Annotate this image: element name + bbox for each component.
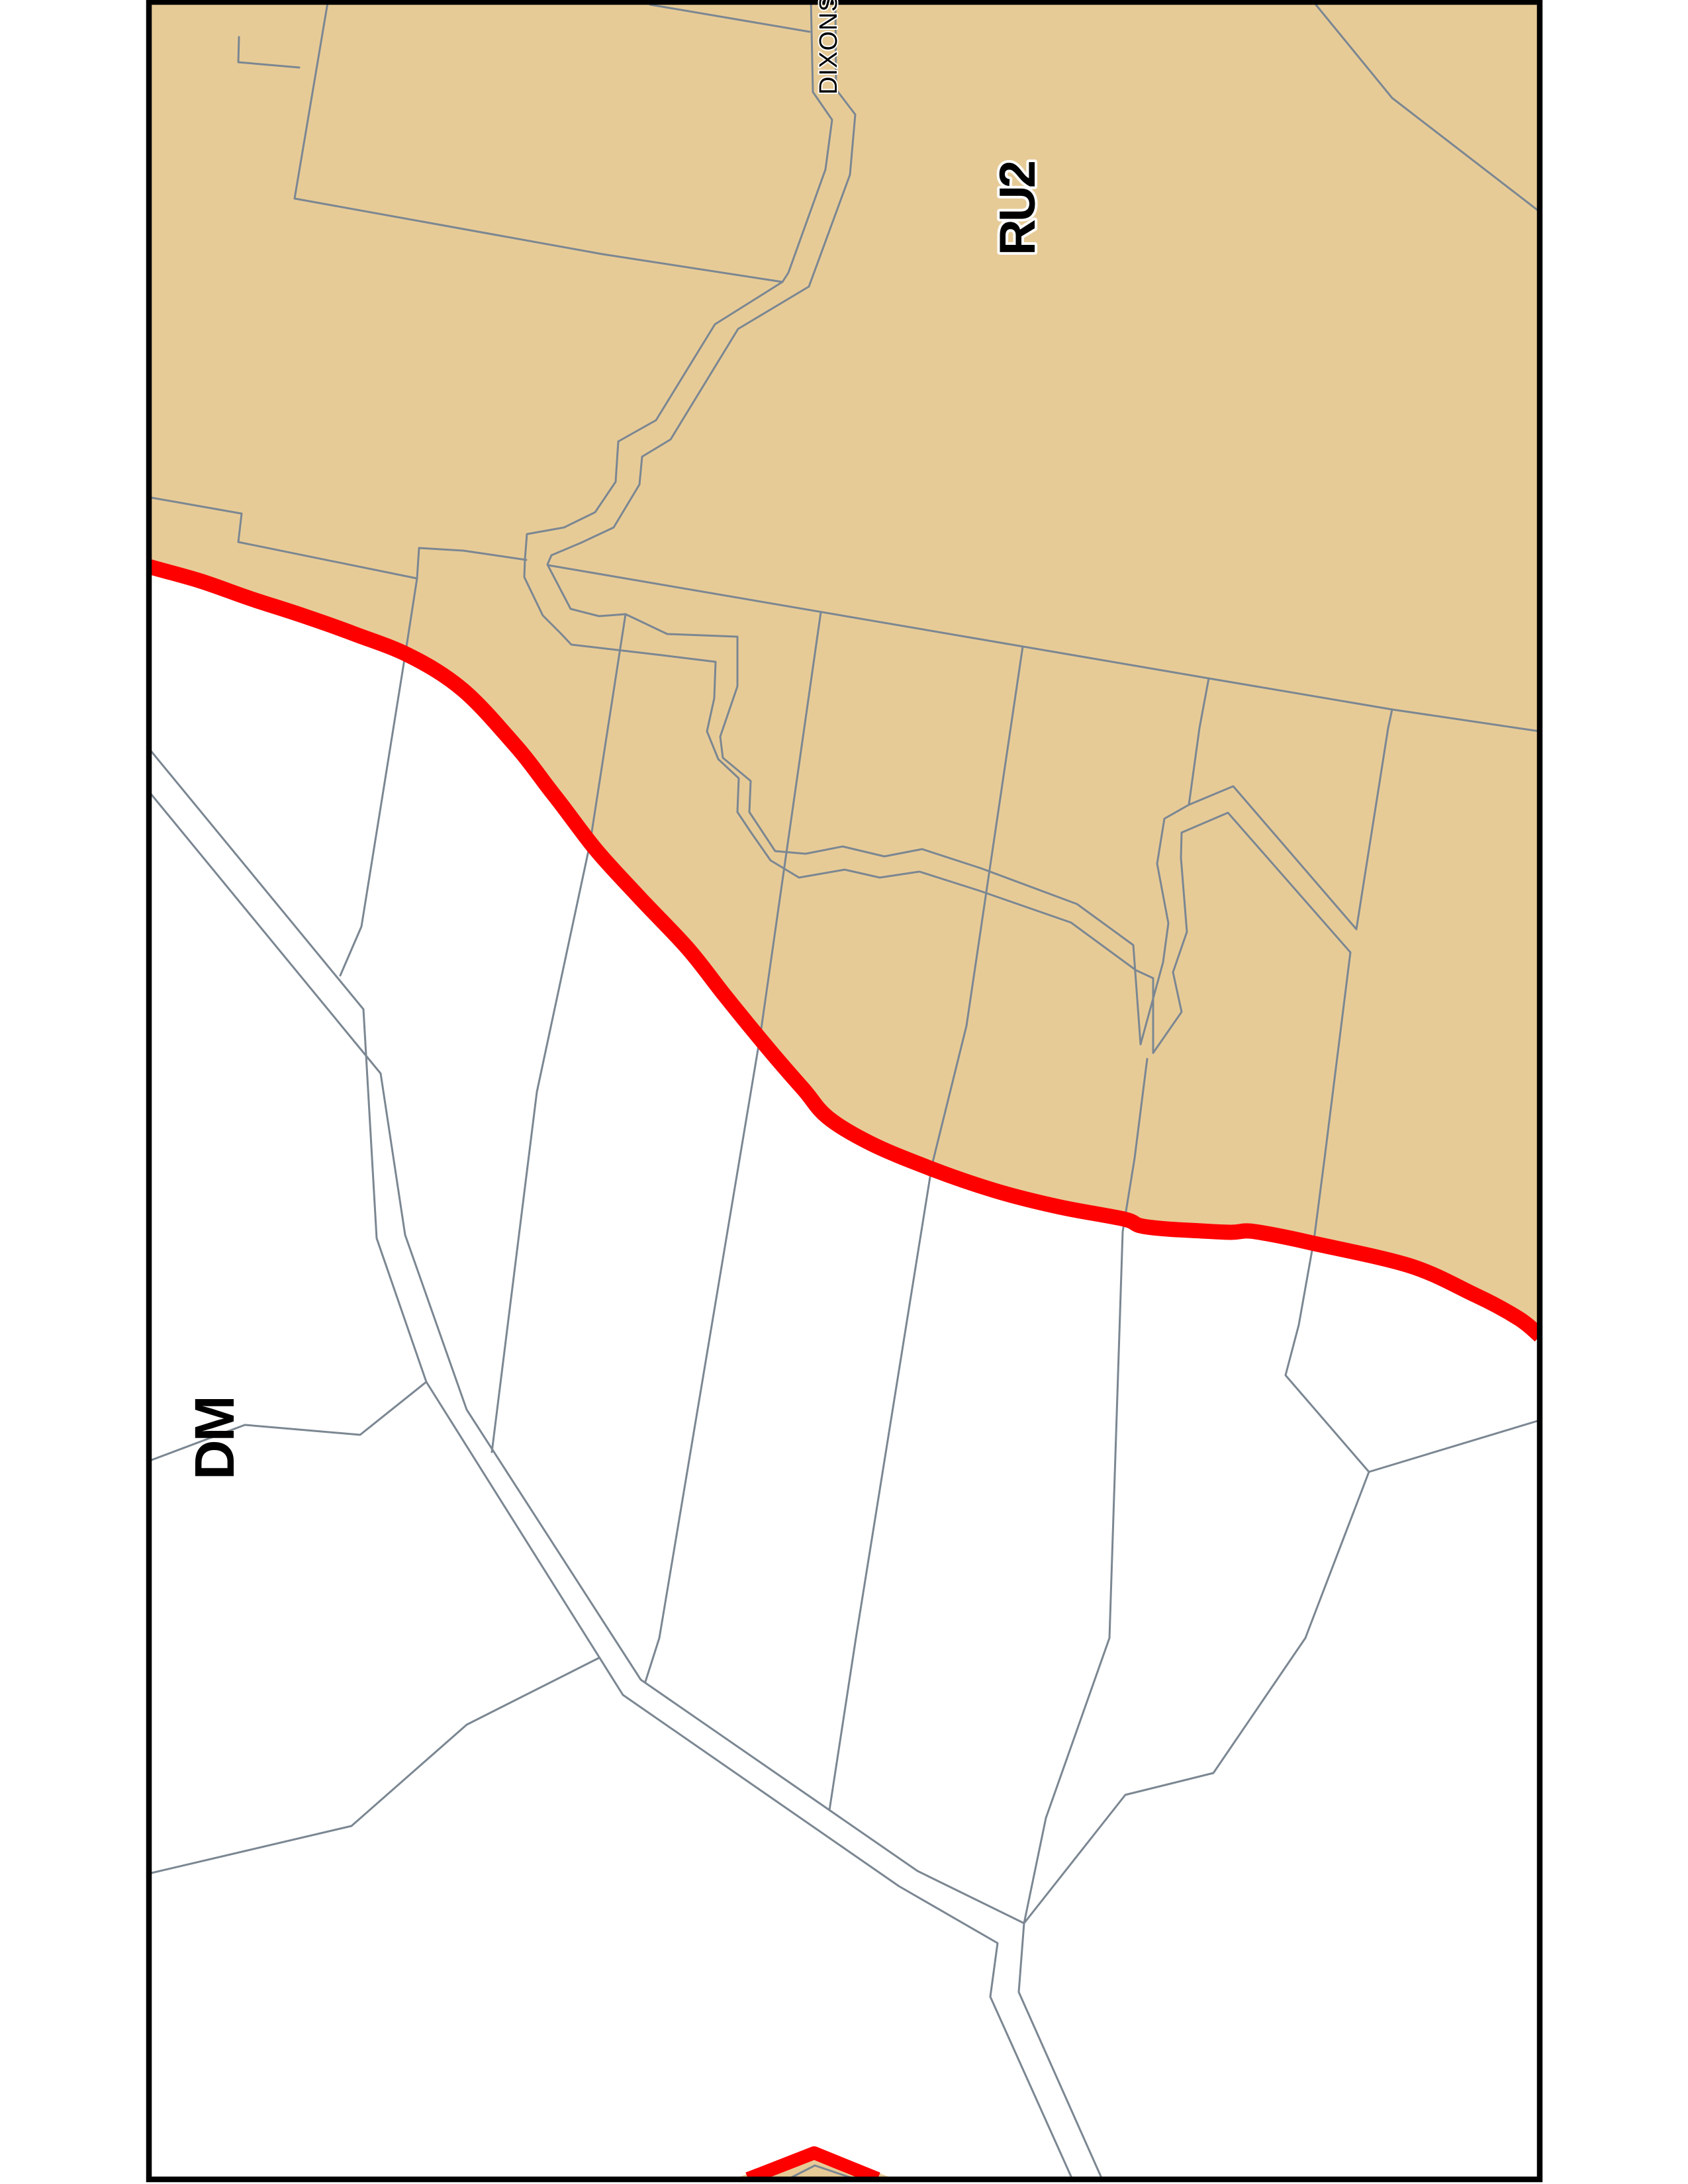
svg-text:DM: DM	[183, 1397, 246, 1480]
svg-text:DIXONS: DIXONS	[815, 0, 843, 95]
svg-text:RU2: RU2	[990, 161, 1046, 255]
